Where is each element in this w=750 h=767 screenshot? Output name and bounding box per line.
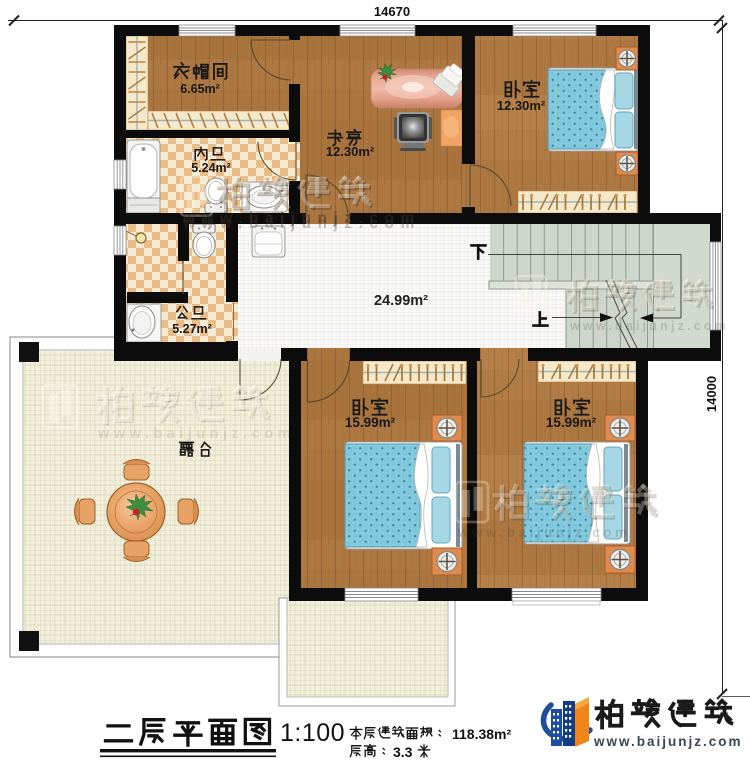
svg-text:3.3: 3.3 <box>393 744 413 760</box>
svg-text:12.30m²: 12.30m² <box>326 144 375 159</box>
svg-text:5.24m²: 5.24m² <box>191 161 231 175</box>
svg-text:24.99m²: 24.99m² <box>374 293 428 309</box>
svg-text:www.baijunjz.com: www.baijunjz.com <box>593 734 743 749</box>
svg-text:15.99m²: 15.99m² <box>345 415 396 430</box>
svg-text:118.38m²: 118.38m² <box>452 726 511 742</box>
svg-text:6.65m²: 6.65m² <box>180 82 220 96</box>
svg-text:www.baijunjz.com: www.baijunjz.com <box>97 426 295 442</box>
svg-text:www.baijunjz.com: www.baijunjz.com <box>569 319 729 333</box>
svg-text:14670: 14670 <box>374 4 410 19</box>
svg-text:5.27m²: 5.27m² <box>172 322 212 336</box>
svg-text:12.30m²: 12.30m² <box>497 98 546 113</box>
svg-text:15.99m²: 15.99m² <box>546 415 597 430</box>
svg-text:1:100: 1:100 <box>280 719 345 747</box>
svg-text:14000: 14000 <box>704 376 719 412</box>
svg-text:www.baijunjz.com: www.baijunjz.com <box>182 210 421 227</box>
svg-text:www.baijunjz.com: www.baijunjz.com <box>457 525 631 540</box>
